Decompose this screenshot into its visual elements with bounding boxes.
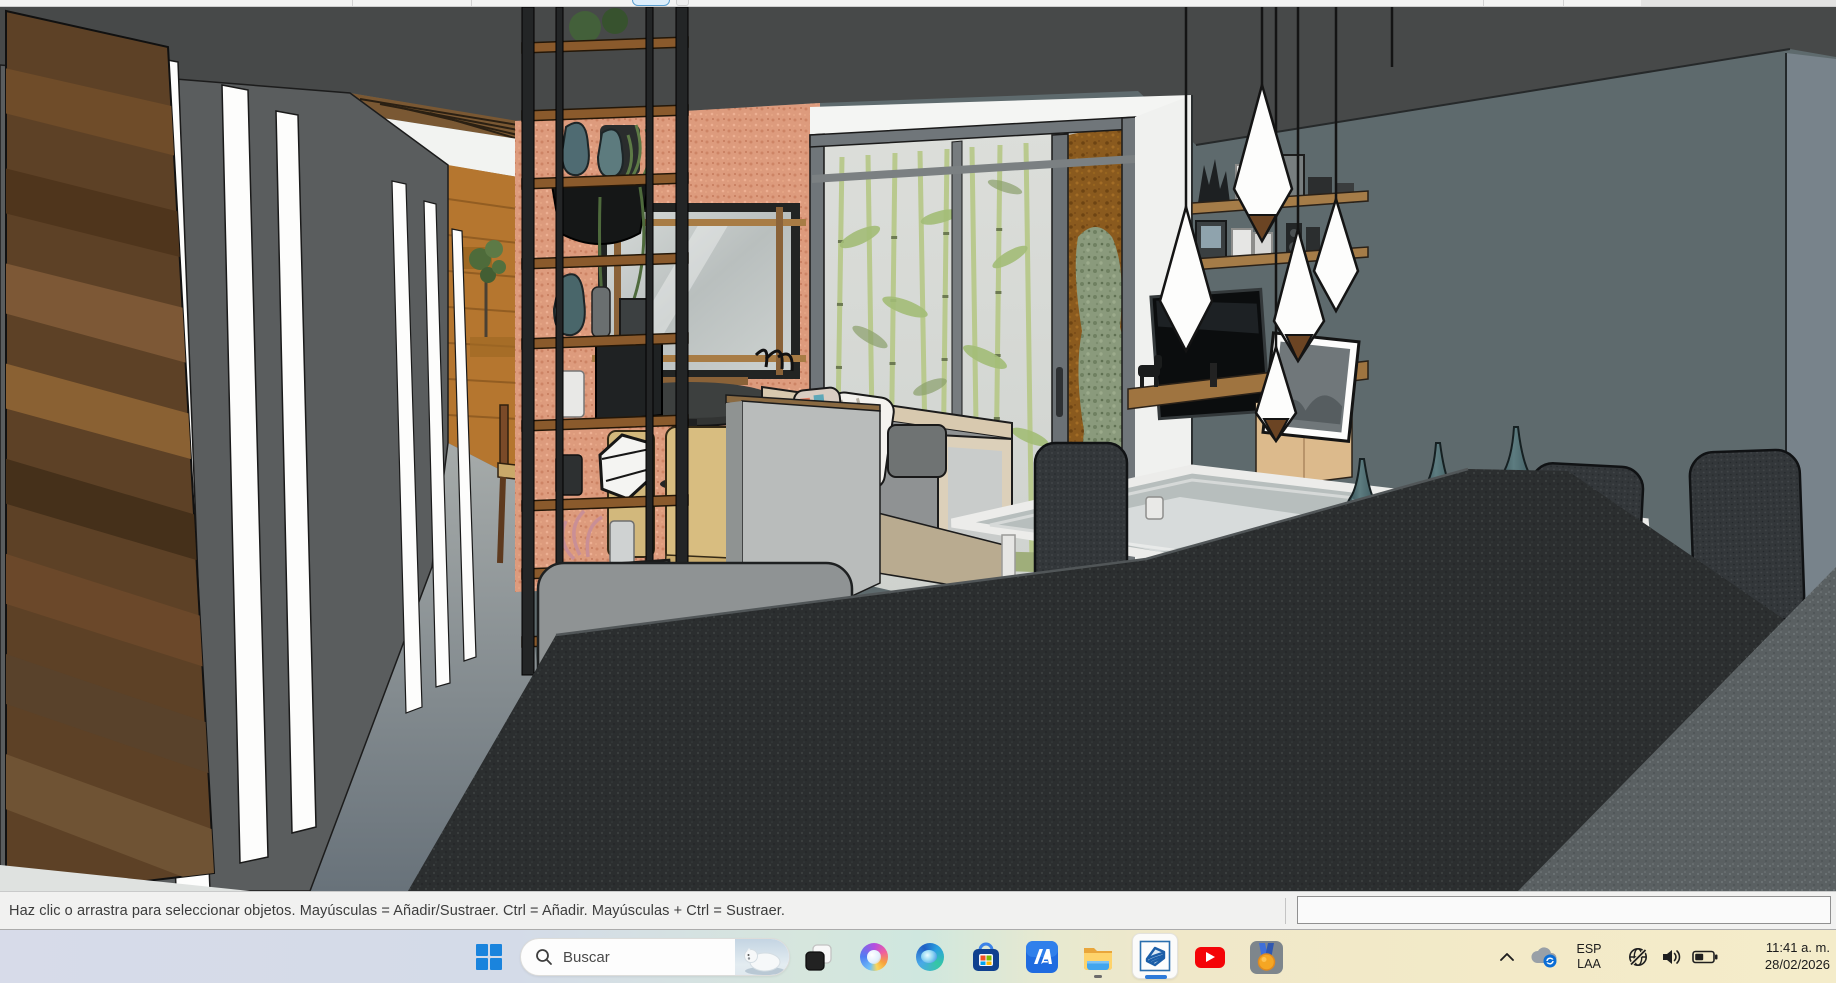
search-daily-image xyxy=(735,938,789,976)
battery-icon xyxy=(1692,950,1718,964)
desktop-screen: Haz clic o arrastra para seleccionar obj… xyxy=(0,0,1836,983)
speaker-icon xyxy=(1661,947,1683,967)
copilot-icon xyxy=(860,943,888,971)
toolbar-divider xyxy=(471,0,472,6)
status-hint-text: Haz clic o arrastra para seleccionar obj… xyxy=(0,903,785,919)
onedrive-tray-button[interactable] xyxy=(1527,935,1563,979)
battery-tray-button[interactable] xyxy=(1688,935,1722,979)
toolbar-right-segment xyxy=(1641,0,1836,6)
search-box[interactable]: Buscar xyxy=(520,938,790,976)
measurements-box[interactable] xyxy=(1297,896,1831,924)
file-explorer-button[interactable] xyxy=(1076,935,1120,979)
file-explorer-icon xyxy=(1082,944,1114,971)
youtube-icon xyxy=(1195,947,1225,968)
medal-app-button[interactable] xyxy=(1244,935,1288,979)
tray-date: 28/02/2026 xyxy=(1765,957,1830,974)
toolbar-divider xyxy=(352,0,353,6)
slash-a-app-button[interactable] xyxy=(1020,935,1064,979)
language-indicator[interactable]: ESP LAA xyxy=(1568,935,1610,979)
youtube-button[interactable] xyxy=(1188,935,1232,979)
task-view-icon xyxy=(805,944,832,971)
medal-app-icon xyxy=(1250,941,1283,974)
edge-icon xyxy=(916,943,944,971)
toolbar-selected-tool-button[interactable] xyxy=(632,0,670,6)
viewport-3d-scene[interactable] xyxy=(0,7,1836,891)
running-indicator xyxy=(1094,975,1102,978)
start-button[interactable] xyxy=(467,935,511,979)
tray-chevron-button[interactable] xyxy=(1492,935,1522,979)
clock-tray-button[interactable]: 11:41 a. m. 28/02/2026 xyxy=(1726,935,1830,979)
microsoft-store-button[interactable] xyxy=(964,935,1008,979)
toolbar-divider xyxy=(1483,0,1484,6)
windows-logo-icon xyxy=(476,944,502,970)
volume-tray-button[interactable] xyxy=(1656,935,1688,979)
edge-button[interactable] xyxy=(908,935,952,979)
console-bottle xyxy=(1210,363,1217,387)
search-icon xyxy=(535,948,553,966)
status-bar-divider xyxy=(1285,898,1286,924)
microsoft-store-icon xyxy=(970,941,1002,973)
slash-a-app-icon xyxy=(1026,941,1058,973)
status-bar: Haz clic o arrastra para seleccionar obj… xyxy=(0,891,1836,929)
task-view-button[interactable] xyxy=(796,935,840,979)
network-no-internet-icon xyxy=(1627,946,1649,968)
tray-time: 11:41 a. m. xyxy=(1766,940,1830,957)
search-placeholder: Buscar xyxy=(563,949,735,966)
sketchup-icon xyxy=(1139,940,1171,972)
copilot-button[interactable] xyxy=(852,935,896,979)
active-indicator xyxy=(1145,975,1167,979)
language-line2: LAA xyxy=(1577,957,1601,972)
sketchup-button[interactable] xyxy=(1132,933,1178,979)
chevron-up-icon xyxy=(1499,952,1515,962)
language-line1: ESP xyxy=(1576,942,1601,957)
taskbar: Buscar xyxy=(0,929,1836,983)
toolbar-tool-button[interactable] xyxy=(676,0,689,6)
toolbar-edge-strip xyxy=(0,0,1836,7)
onedrive-cloud-icon xyxy=(1530,946,1560,968)
toolbar-divider xyxy=(1563,0,1564,6)
network-tray-button[interactable] xyxy=(1622,935,1654,979)
